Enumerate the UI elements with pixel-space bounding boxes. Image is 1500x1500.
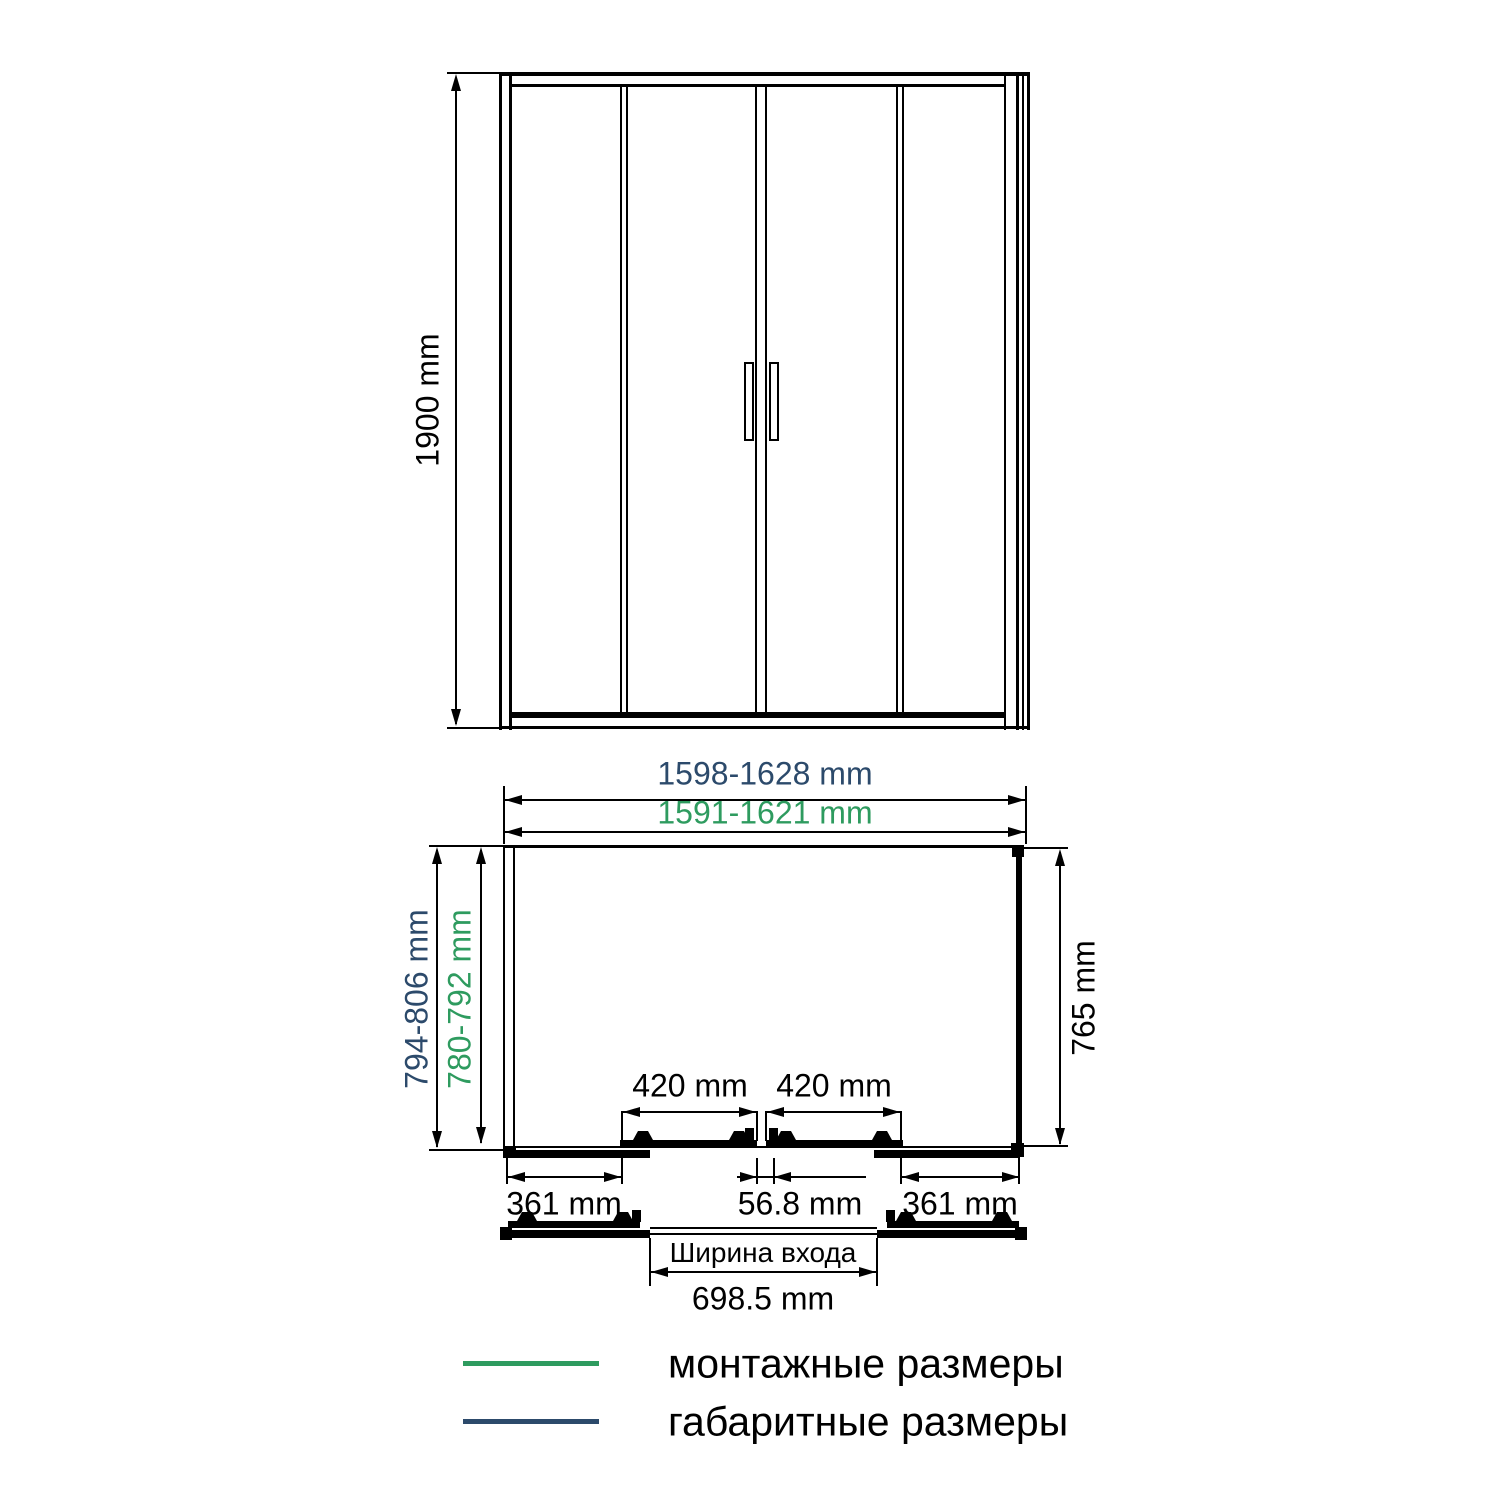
door-left-arrow-b	[739, 1107, 756, 1117]
entrance-right-slider	[887, 1221, 1019, 1228]
front-center-stile-left	[755, 87, 757, 712]
height-dim-arrow-bottom	[451, 709, 461, 726]
front-right-profile-line2	[1016, 72, 1019, 730]
fixed-left-arrow-a	[508, 1172, 525, 1182]
height-dim-ext-bottom	[447, 727, 502, 729]
plan-left-edge-inner	[513, 845, 515, 1148]
height-dim-label: 1900 mm	[410, 333, 447, 466]
front-right-profile-line1	[1004, 72, 1006, 730]
overall-depth-arrow-top	[432, 847, 442, 864]
front-center-stile-right	[765, 87, 767, 712]
front-left-profile-outer	[499, 72, 502, 730]
install-depth-label: 780-792 mm	[442, 909, 479, 1089]
door-right-dim-line	[766, 1111, 901, 1113]
width-dim-ext-right	[1025, 786, 1027, 844]
front-right-profile-line4	[1027, 72, 1030, 730]
entrance-left-stub	[632, 1210, 641, 1222]
door-handle-left	[744, 362, 754, 441]
door-handle-right	[769, 362, 779, 441]
front-top-rail-inner	[512, 84, 1006, 87]
legend-install-label: монтажные размеры	[668, 1341, 1064, 1388]
entrance-right-fixed	[877, 1230, 1027, 1238]
fixed-right-arrow-a	[902, 1172, 919, 1182]
plan-fixed-panel-right	[874, 1150, 1020, 1158]
fixed-left-arrow-b	[604, 1172, 621, 1182]
side-dim-ext-bottom	[1024, 1145, 1068, 1147]
install-width-label: 1591-1621 mm	[657, 795, 872, 832]
install-depth-arrow-top	[476, 847, 486, 864]
install-depth-arrow-bottom	[476, 1127, 486, 1144]
door-left-ext-b	[756, 1111, 758, 1141]
door-left-dim-line	[622, 1111, 757, 1113]
overall-depth-label: 794-806 mm	[399, 909, 436, 1089]
side-depth-label: 765 mm	[1066, 940, 1103, 1056]
entrance-right-stub	[886, 1210, 895, 1222]
plan-slider-left	[620, 1140, 757, 1147]
roller-icon	[872, 1131, 892, 1140]
install-depth-dim-line	[480, 850, 482, 1143]
entrance-track-a	[650, 1227, 877, 1229]
height-dim-line	[455, 78, 457, 724]
fixed-right-arrow-b	[1002, 1172, 1019, 1182]
roller-icon	[992, 1212, 1012, 1221]
overall-width-arrow-right	[1008, 795, 1025, 805]
install-width-dim-line	[504, 831, 1026, 833]
front-bottom-rail-outer	[499, 726, 1030, 729]
entrance-arrow-left	[651, 1267, 668, 1277]
entrance-title: Ширина входа	[670, 1237, 857, 1269]
door-right-label: 420 mm	[776, 1068, 892, 1105]
entrance-arrow-right	[859, 1267, 876, 1277]
roller-icon	[633, 1131, 653, 1140]
entrance-left-fixed	[500, 1230, 650, 1238]
plan-center-stub-left	[745, 1128, 754, 1141]
front-bottom-rail-inner	[512, 712, 1006, 718]
install-width-arrow-left	[505, 827, 522, 837]
front-divider-right-a	[896, 87, 898, 712]
legend-install-line	[463, 1361, 599, 1366]
front-divider-left-b	[626, 87, 628, 712]
overlap-arrow-a	[740, 1172, 757, 1182]
entrance-right-cap	[1015, 1227, 1027, 1240]
door-left-arrow-a	[623, 1107, 640, 1117]
roller-icon	[776, 1131, 796, 1140]
overlap-arrow-b	[774, 1172, 791, 1182]
front-right-profile-line3	[1022, 72, 1024, 730]
door-right-arrow-a	[767, 1107, 784, 1117]
plan-slider-right	[766, 1140, 903, 1147]
side-dim-arrow-top	[1055, 849, 1065, 866]
legend-overall-label: габаритные размеры	[668, 1399, 1068, 1446]
plan-left-edge-outer	[503, 845, 505, 1155]
overall-width-label: 1598-1628 mm	[657, 756, 872, 793]
height-dim-arrow-top	[451, 74, 461, 91]
entrance-left-slider	[508, 1221, 640, 1228]
entrance-dim-line	[650, 1271, 877, 1273]
entrance-width-label: 698.5 mm	[692, 1281, 834, 1318]
legend-overall-line	[463, 1419, 599, 1424]
door-right-arrow-b	[883, 1107, 900, 1117]
overall-width-arrow-left	[505, 795, 522, 805]
roller-icon	[896, 1212, 916, 1221]
side-dim-line	[1059, 852, 1061, 1144]
install-width-arrow-right	[1008, 827, 1025, 837]
front-divider-left-a	[620, 87, 622, 712]
front-divider-right-b	[902, 87, 904, 712]
bottom-ext-2	[621, 1158, 623, 1184]
front-left-profile-inner	[509, 72, 512, 730]
plan-fixed-panel-left	[504, 1150, 650, 1158]
entrance-ext-left	[649, 1238, 651, 1286]
entrance-ext-right	[876, 1238, 878, 1286]
plan-track-line	[503, 1146, 1022, 1148]
overlap-label: 56.8 mm	[738, 1186, 862, 1223]
side-dim-arrow-bottom	[1055, 1128, 1065, 1145]
plan-center-stub-right	[769, 1128, 778, 1141]
roller-icon	[517, 1212, 537, 1221]
front-top-rail-outer	[499, 72, 1030, 76]
plan-right-wall-cap-top	[1012, 845, 1024, 857]
depth-ext-bottom	[429, 1149, 503, 1151]
roller-icon	[613, 1212, 633, 1221]
entrance-track-b	[650, 1233, 877, 1235]
plan-left-corner-cap	[503, 1146, 516, 1158]
plan-top-edge	[503, 845, 1024, 848]
entrance-left-cap	[500, 1227, 512, 1240]
door-left-label: 420 mm	[632, 1068, 748, 1105]
overall-depth-dim-line	[436, 850, 438, 1147]
plan-right-wall-bar	[1016, 847, 1022, 1153]
door-right-ext-b	[900, 1111, 902, 1141]
overall-depth-arrow-bottom	[432, 1131, 442, 1148]
shower-enclosure-dimension-diagram: 1900 mm 1598-1628 mm 1591-162	[0, 0, 1500, 1500]
